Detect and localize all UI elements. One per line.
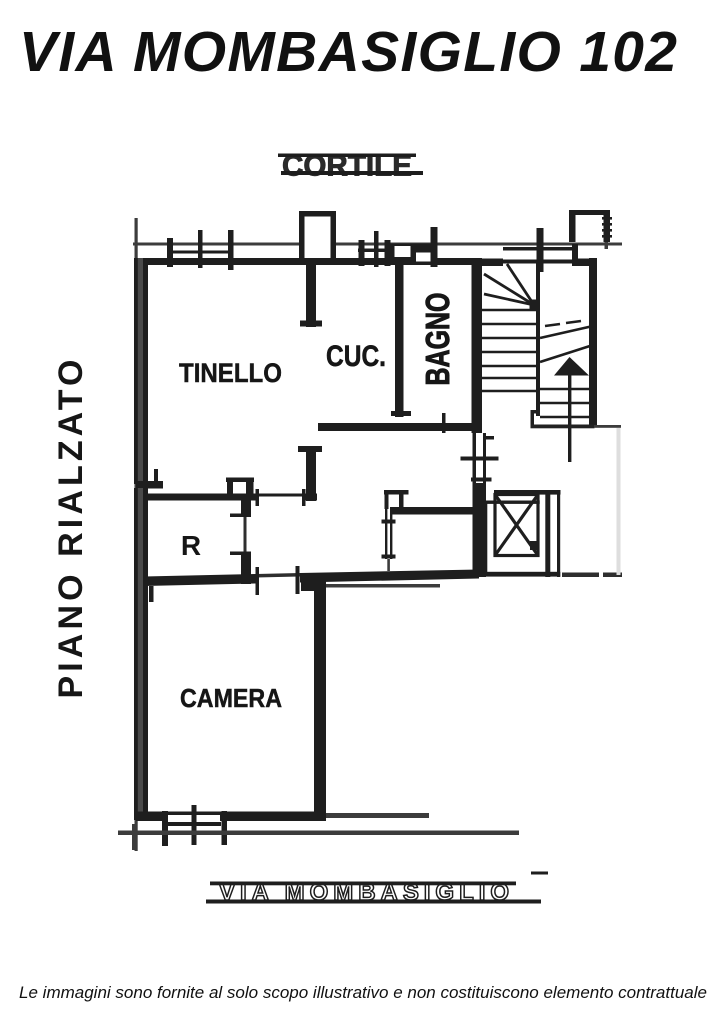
svg-text:PIANO RIALZATO: PIANO RIALZATO (52, 360, 90, 699)
svg-text:CUC.: CUC. (326, 340, 386, 373)
svg-text:BAGNO: BAGNO (419, 293, 456, 386)
svg-text:TINELLO: TINELLO (179, 358, 282, 388)
svg-text:VIA MOMBASIGLIO 102: VIA MOMBASIGLIO 102 (19, 20, 677, 84)
svg-text:Le immagini sono fornite al so: Le immagini sono fornite al solo scopo i… (19, 983, 707, 1002)
svg-text:CAMERA: CAMERA (180, 683, 282, 713)
svg-text:R: R (181, 530, 201, 561)
